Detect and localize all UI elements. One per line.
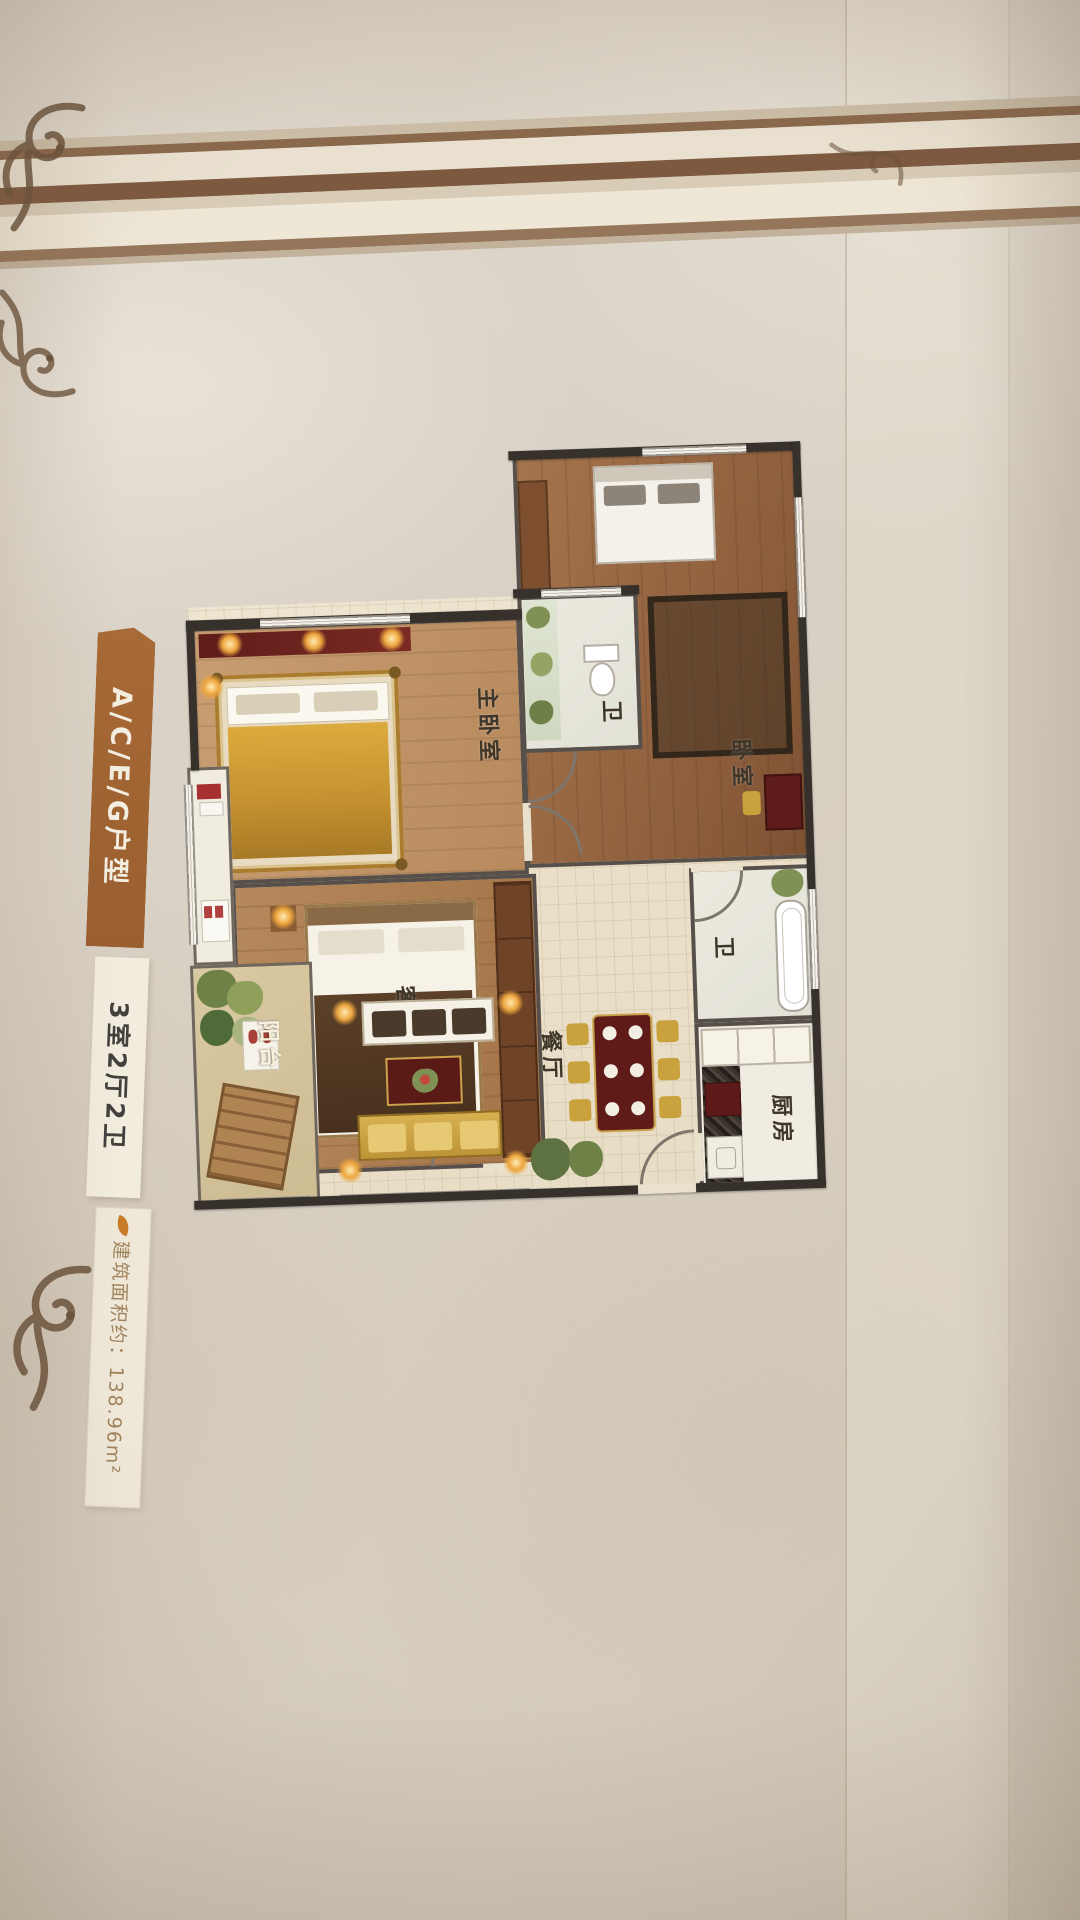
stove xyxy=(704,1082,741,1117)
coffee-table xyxy=(385,1055,463,1106)
wall-light-band xyxy=(845,0,1010,1920)
chair xyxy=(657,1058,680,1081)
desk xyxy=(764,773,804,830)
canopy-bed xyxy=(214,669,405,873)
dining-table xyxy=(592,1013,656,1133)
wardrobe xyxy=(517,480,551,591)
sink xyxy=(706,1136,743,1179)
chair xyxy=(568,1061,591,1084)
toilet xyxy=(583,644,620,663)
chair xyxy=(656,1020,679,1043)
sofa xyxy=(361,997,494,1046)
sofa xyxy=(357,1110,503,1161)
corner-ornament-icon xyxy=(0,96,94,236)
wall-seam xyxy=(1008,0,1010,1920)
room-label-bathroom-top: 卫 xyxy=(597,699,630,726)
wall-seam xyxy=(845,0,847,1920)
chair xyxy=(569,1099,592,1122)
room-label-bathroom-middle: 卫 xyxy=(709,936,742,963)
room-label-bedroom-top-right: 卧室 xyxy=(726,738,760,791)
plan-info-strip: A/C/E/G户型 3室2厅2卫 建筑面积约：138.96m² xyxy=(58,626,182,1509)
room-count-label: 3室2厅2卫 xyxy=(97,1001,139,1153)
corner-ornament-icon xyxy=(827,133,907,191)
leaf-icon xyxy=(113,1215,132,1237)
lounge-chair xyxy=(206,1083,299,1191)
shower-area xyxy=(522,600,561,741)
bed xyxy=(593,462,716,564)
room-label-dining: 餐厅 xyxy=(536,1030,570,1083)
toilet-bowl xyxy=(589,662,616,697)
room-label-balcony: 阳台 xyxy=(254,1020,288,1073)
chair xyxy=(566,1023,589,1046)
area-badge: 建筑面积约：138.96m² xyxy=(84,1207,151,1509)
floor-plan: 卧室 卫 主卧室 卧室 xyxy=(164,441,831,1253)
unit-type-badge: A/C/E/G户型 xyxy=(86,626,156,948)
room-count-badge: 3室2厅2卫 xyxy=(86,956,149,1198)
room-label-kitchen: 厨房 xyxy=(767,1094,801,1147)
kitchen-cabinet xyxy=(700,1025,811,1067)
rug xyxy=(647,592,793,759)
bathtub xyxy=(774,899,810,1012)
unit-type-label: A/C/E/G户型 xyxy=(97,686,144,888)
room-label-master-bedroom: 主卧室 xyxy=(472,687,507,766)
chair xyxy=(742,791,761,816)
chair xyxy=(659,1096,682,1119)
corner-ornament-icon xyxy=(0,278,84,411)
area-label: 建筑面积约：138.96m² xyxy=(100,1240,136,1475)
